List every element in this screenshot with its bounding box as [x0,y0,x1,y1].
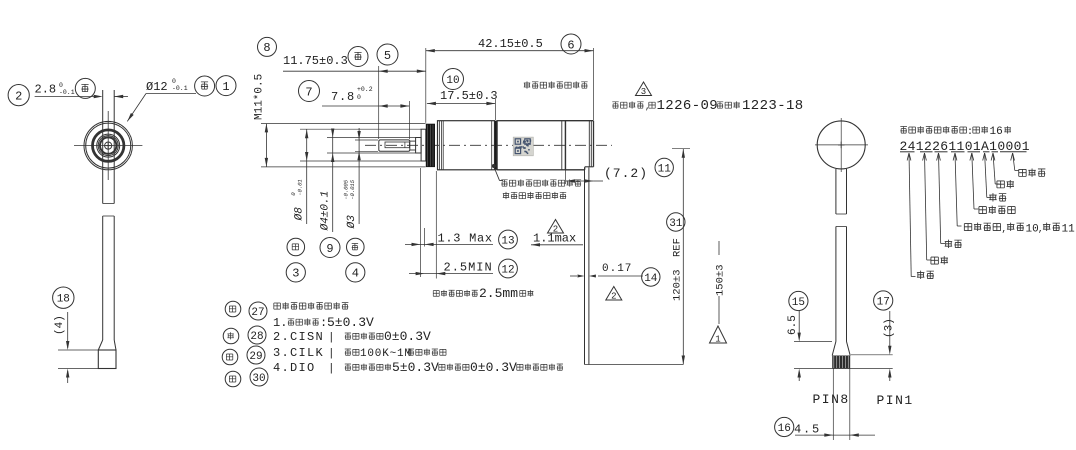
svg-text:0: 0 [357,94,361,101]
svg-text:1.: 1. [273,316,287,330]
svg-text:120±3: 120±3 [672,269,684,301]
svg-text:1223-18: 1223-18 [742,98,804,114]
svg-text:12: 12 [501,264,514,276]
svg-text:7: 7 [305,85,312,99]
svg-text:1.3 Max: 1.3 Max [438,232,493,246]
svg-text:5: 5 [384,49,391,63]
svg-text:16: 16 [778,423,791,435]
svg-text:2.5MIN: 2.5MIN [444,261,493,275]
svg-text:2: 2 [553,225,558,235]
svg-text:6: 6 [567,38,574,52]
svg-text:13: 13 [501,235,514,247]
svg-text:0±0.3V: 0±0.3V [470,360,517,375]
svg-text:PIN1: PIN1 [877,393,914,408]
svg-text:Ø12: Ø12 [146,80,168,94]
svg-text:3: 3 [641,87,646,97]
svg-text:+0.2: +0.2 [357,86,373,93]
svg-text:2: 2 [611,292,616,302]
svg-text:Ø8: Ø8 [294,206,306,222]
svg-text:10: 10 [1026,224,1039,236]
svg-text:-0.1: -0.1 [172,85,188,92]
svg-text:(4): (4) [54,315,66,335]
svg-text:2.CISN: 2.CISN [273,330,324,344]
svg-text:27: 27 [251,307,264,319]
svg-text:100K~1M: 100K~1M [360,348,412,360]
svg-text:11.75±0.3: 11.75±0.3 [283,54,348,68]
svg-text:8: 8 [263,41,270,55]
svg-text:1226-09: 1226-09 [657,98,719,114]
svg-text:(7.2): (7.2) [604,166,648,181]
svg-text:10: 10 [446,75,459,87]
svg-text:|: | [328,363,335,375]
svg-text:-0.1: -0.1 [59,89,75,96]
svg-text:17: 17 [877,296,890,308]
svg-text:18: 18 [57,294,70,306]
svg-text:9: 9 [326,242,333,256]
svg-text:17.5±0.3: 17.5±0.3 [440,89,498,103]
svg-text:0±0.3V: 0±0.3V [384,329,431,344]
svg-text:3: 3 [292,267,299,281]
svg-text:PIN8: PIN8 [813,392,850,407]
svg-text:5±0.3V: 5±0.3V [327,315,374,330]
svg-text:2.8: 2.8 [35,83,57,97]
svg-text:0: 0 [59,82,63,89]
svg-text:14: 14 [644,273,658,285]
svg-text:4: 4 [352,267,359,281]
svg-text:3.CILK: 3.CILK [273,346,324,360]
svg-text:11: 11 [658,163,672,175]
svg-text:-0.015: -0.015 [349,179,356,200]
svg-text:1: 1 [222,80,229,94]
svg-text:,: , [645,102,650,112]
svg-text:42.15±0.5: 42.15±0.5 [478,37,543,51]
svg-text:15: 15 [792,297,805,309]
svg-text:150±3: 150±3 [715,264,727,296]
svg-text:Ø4±0.1: Ø4±0.1 [320,189,332,231]
svg-text:0.17: 0.17 [602,263,632,275]
svg-text::: : [967,127,973,138]
svg-text:0: 0 [172,78,176,85]
svg-text:28: 28 [250,331,263,343]
svg-text:2: 2 [15,89,22,103]
svg-text:1: 1 [715,335,720,345]
svg-text:31: 31 [669,218,683,230]
svg-text:Ø3: Ø3 [346,214,358,230]
svg-text:16: 16 [990,126,1003,138]
svg-text:5±0.3V: 5±0.3V [392,360,439,375]
svg-text:30: 30 [252,373,265,385]
svg-text:,: , [1002,225,1007,235]
svg-text:|: | [328,332,335,344]
svg-text:-0.01: -0.01 [297,178,304,197]
svg-text:|: | [328,348,335,360]
svg-text:2.5mm: 2.5mm [479,286,518,301]
svg-text:,: , [1038,225,1043,235]
svg-text:4.5: 4.5 [794,423,821,437]
svg-text:11: 11 [1062,224,1076,236]
svg-text:REF: REF [672,238,684,257]
svg-text:6.5: 6.5 [787,315,799,335]
svg-text:M11*0.5: M11*0.5 [254,74,266,120]
svg-text:29: 29 [249,351,262,363]
svg-text:7.8: 7.8 [331,90,355,104]
svg-text:4.DIO: 4.DIO [273,361,316,375]
